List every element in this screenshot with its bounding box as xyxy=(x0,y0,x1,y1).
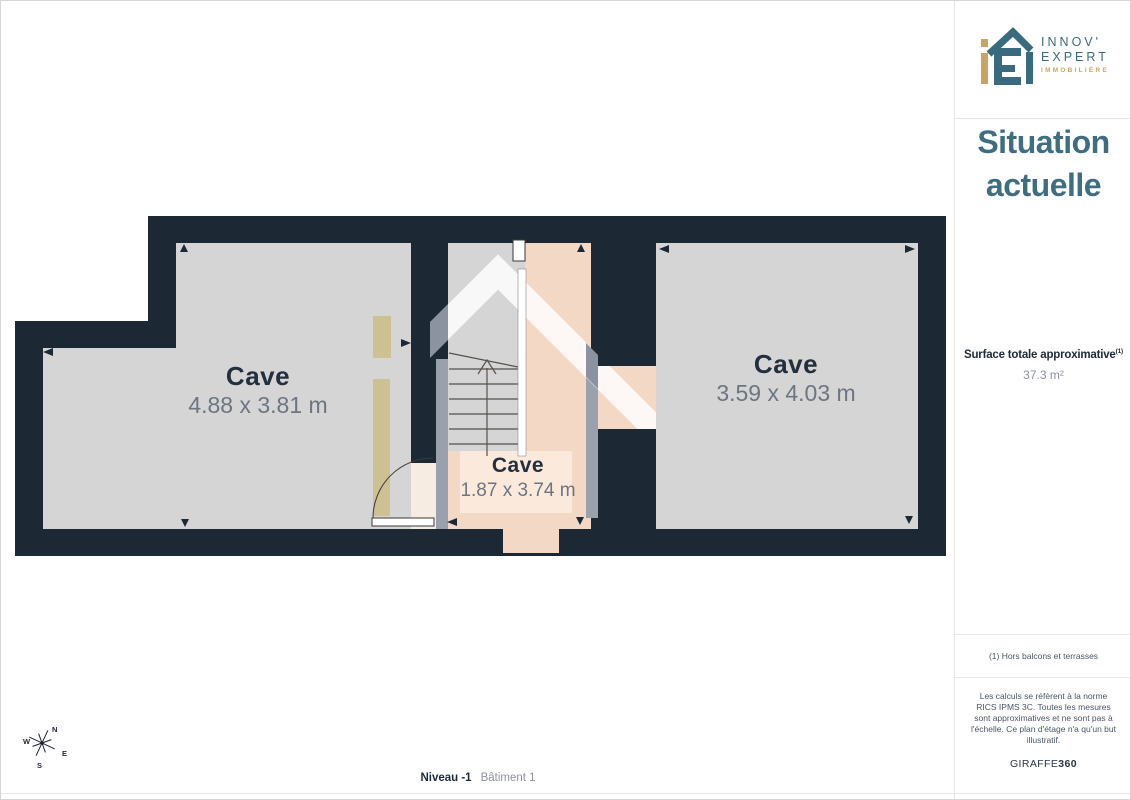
footer-divider xyxy=(1,793,1131,794)
surface-summary: Surface totale approximative(1) 37.3 m² xyxy=(955,348,1131,382)
floor-level-caption: Niveau -1Bâtiment 1 xyxy=(420,772,535,784)
stair-rail xyxy=(518,269,526,456)
brand-suffix: 360 xyxy=(1058,758,1077,770)
surface-total-value: 37.3 m² xyxy=(955,368,1131,382)
door-sill xyxy=(372,518,434,526)
floor-plan-drawing xyxy=(1,1,955,800)
plan-title-line2: actuelle xyxy=(955,164,1131,207)
sidebar: INNOV' EXPERT IMMOBILIÈRE Situation actu… xyxy=(955,1,1131,800)
room-floor-left xyxy=(43,243,411,529)
surface-total-label: Surface totale approximative(1) xyxy=(955,348,1131,361)
level-label: Niveau -1 xyxy=(420,772,471,784)
building-label: Bâtiment 1 xyxy=(481,772,536,784)
door-panel-upper xyxy=(373,316,391,358)
compass-west-label: W xyxy=(23,737,31,746)
brand-name: GIRAFFE xyxy=(1010,758,1058,770)
disclaimer-text: Les calculs se réfèrent à la norme RICS … xyxy=(969,691,1118,746)
compass-east-label: E xyxy=(62,749,67,758)
company-logo: INNOV' EXPERT IMMOBILIÈRE xyxy=(955,23,1131,87)
logo-line-immobiliere: IMMOBILIÈRE xyxy=(1041,68,1109,74)
wall-shadow-left xyxy=(436,359,448,529)
logo-wordmark: INNOV' EXPERT IMMOBILIÈRE xyxy=(1041,36,1109,74)
compass-south-label: S xyxy=(37,761,42,770)
surface-label-text: Surface totale approximative xyxy=(964,349,1116,361)
logo-section-divider xyxy=(955,118,1131,119)
house-logo-icon xyxy=(978,23,1034,87)
brand-mark: GIRAFFE360 xyxy=(955,758,1131,770)
compass-north-label: N xyxy=(52,725,57,734)
door-panel-lower xyxy=(373,379,390,516)
sidebar-divider xyxy=(954,1,955,800)
footnote-text: (1) Hors balcons et terrasses xyxy=(955,634,1131,677)
plan-title: Situation actuelle xyxy=(955,121,1131,207)
compass-rose: N E S W xyxy=(9,704,81,784)
entrance-stub xyxy=(503,529,559,553)
logo-line-expert: EXPERT xyxy=(1041,51,1109,64)
surface-footnote-marker: (1) xyxy=(1116,348,1123,355)
footnote-divider-top xyxy=(955,634,1131,635)
plan-title-line1: Situation xyxy=(955,121,1131,164)
page: Cave 4.88 x 3.81 m Cave 1.87 x 3.74 m Ca… xyxy=(0,0,1131,800)
logo-line-innov: INNOV' xyxy=(1041,36,1109,49)
room-floor-center-inner xyxy=(460,451,572,513)
footnote-divider-bottom xyxy=(955,677,1131,678)
wall-opening-stub xyxy=(513,240,525,261)
room-floor-right xyxy=(656,243,918,529)
